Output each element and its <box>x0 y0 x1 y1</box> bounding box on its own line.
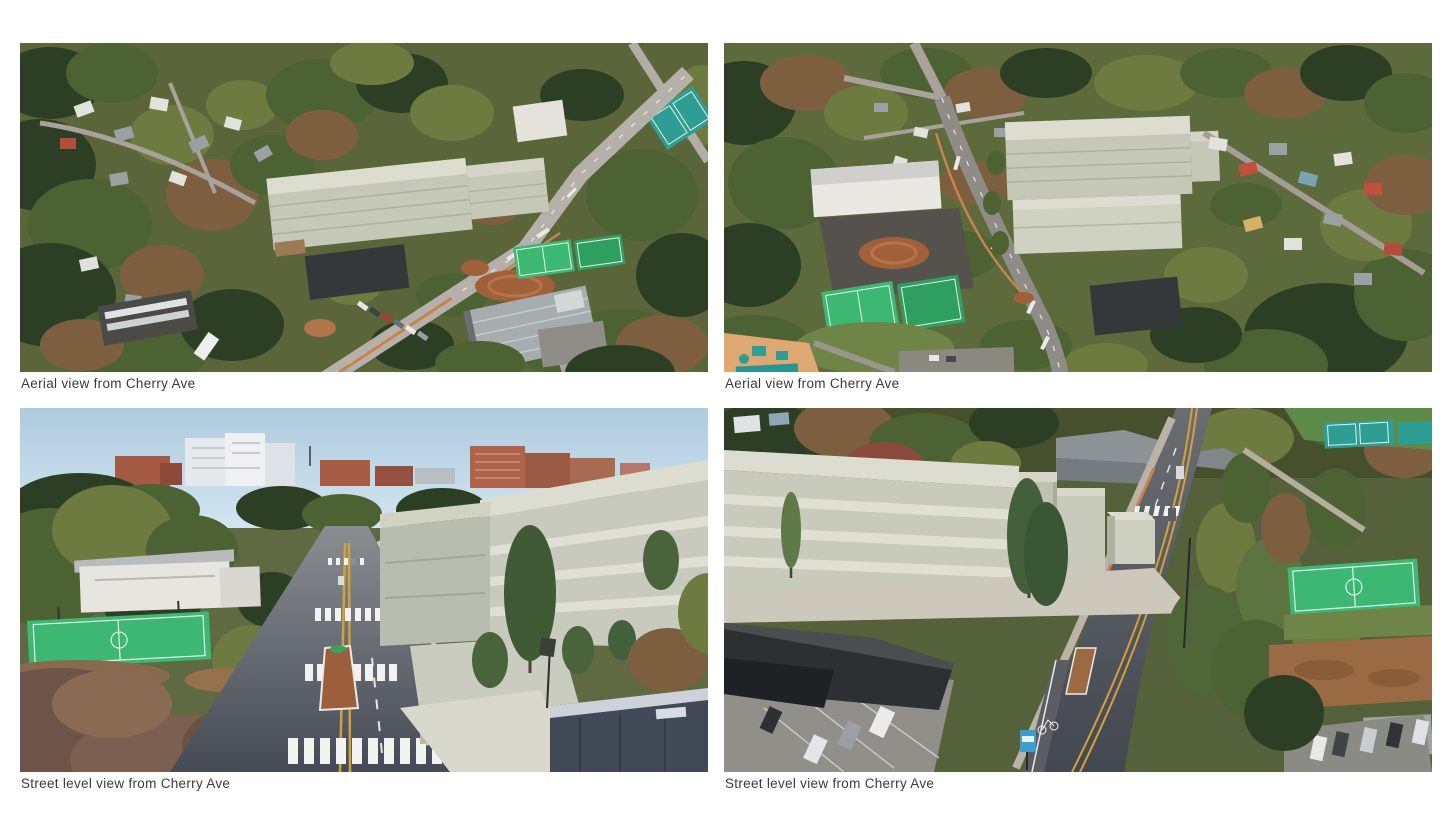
parking-lot <box>899 347 1015 372</box>
basketball-court <box>1287 559 1420 616</box>
existing-dark-building <box>1090 277 1183 336</box>
figure-street-right <box>724 408 1432 772</box>
page: { "page": { "background": "#ffffff", "ca… <box>0 0 1456 818</box>
street-right-image <box>724 408 1432 772</box>
aerial-right-image <box>724 43 1432 372</box>
street-left-image <box>20 408 708 772</box>
figure-street-left <box>20 408 708 772</box>
figure-aerial-left <box>20 43 708 372</box>
figure-caption: Aerial view from Cherry Ave <box>21 375 195 392</box>
existing-building <box>811 160 942 217</box>
figure-caption: Street level view from Cherry Ave <box>21 775 230 792</box>
aerial-left-image <box>20 43 708 372</box>
existing-building <box>513 100 568 143</box>
figure-caption: Street level view from Cherry Ave <box>725 775 934 792</box>
figure-aerial-right <box>724 43 1432 372</box>
figure-caption: Aerial view from Cherry Ave <box>725 375 899 392</box>
baseball-field <box>859 237 929 269</box>
